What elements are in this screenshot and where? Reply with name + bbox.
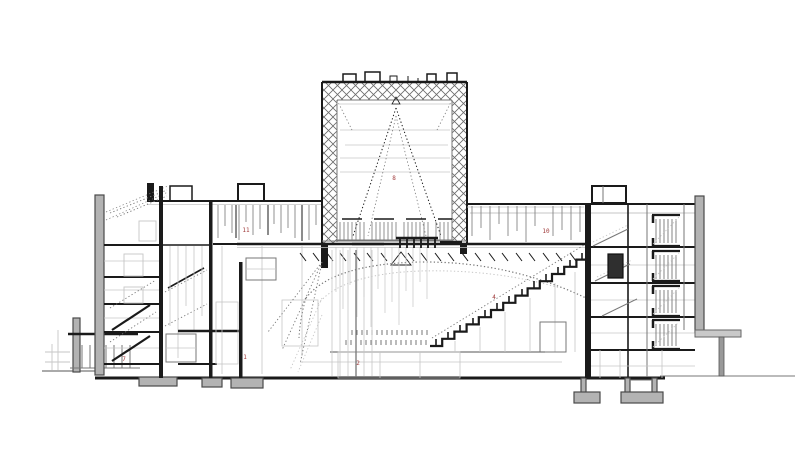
duct-shaft bbox=[608, 254, 623, 278]
canopy-post bbox=[719, 337, 724, 376]
canopy-ledge bbox=[695, 330, 741, 337]
room-label-2: 2 bbox=[356, 360, 360, 367]
section-drawing-canvas: 7 1 2 8 11 10 4 bbox=[0, 0, 800, 450]
foundation-footings bbox=[139, 377, 663, 403]
roof-vents bbox=[343, 72, 457, 82]
proscenium-right-wall bbox=[585, 203, 591, 378]
left-technical-zone bbox=[213, 205, 322, 374]
fly-tower-lattice-left-wall bbox=[322, 82, 337, 244]
room-label-10: 10 bbox=[542, 228, 550, 235]
left-exterior-wall bbox=[95, 195, 104, 375]
room-label-7: 7 bbox=[122, 356, 126, 363]
shelf-stacks bbox=[652, 215, 680, 349]
room-label-4: 4 bbox=[492, 294, 496, 301]
building-section-drawing: 7 1 2 8 11 10 4 bbox=[0, 0, 800, 450]
auditorium bbox=[237, 244, 589, 378]
fly-tower-lattice-roof-truss bbox=[337, 82, 452, 100]
left-wing bbox=[104, 183, 322, 378]
room-label-11: 11 bbox=[242, 227, 250, 234]
room-label-1: 1 bbox=[243, 354, 247, 361]
right-wing bbox=[585, 186, 741, 378]
room-label-8: 8 bbox=[392, 175, 396, 182]
right-exterior-wall bbox=[695, 196, 704, 332]
fly-tower bbox=[321, 72, 467, 268]
fly-tower-lattice-right-wall bbox=[452, 82, 467, 244]
stalls-seating bbox=[346, 330, 427, 345]
